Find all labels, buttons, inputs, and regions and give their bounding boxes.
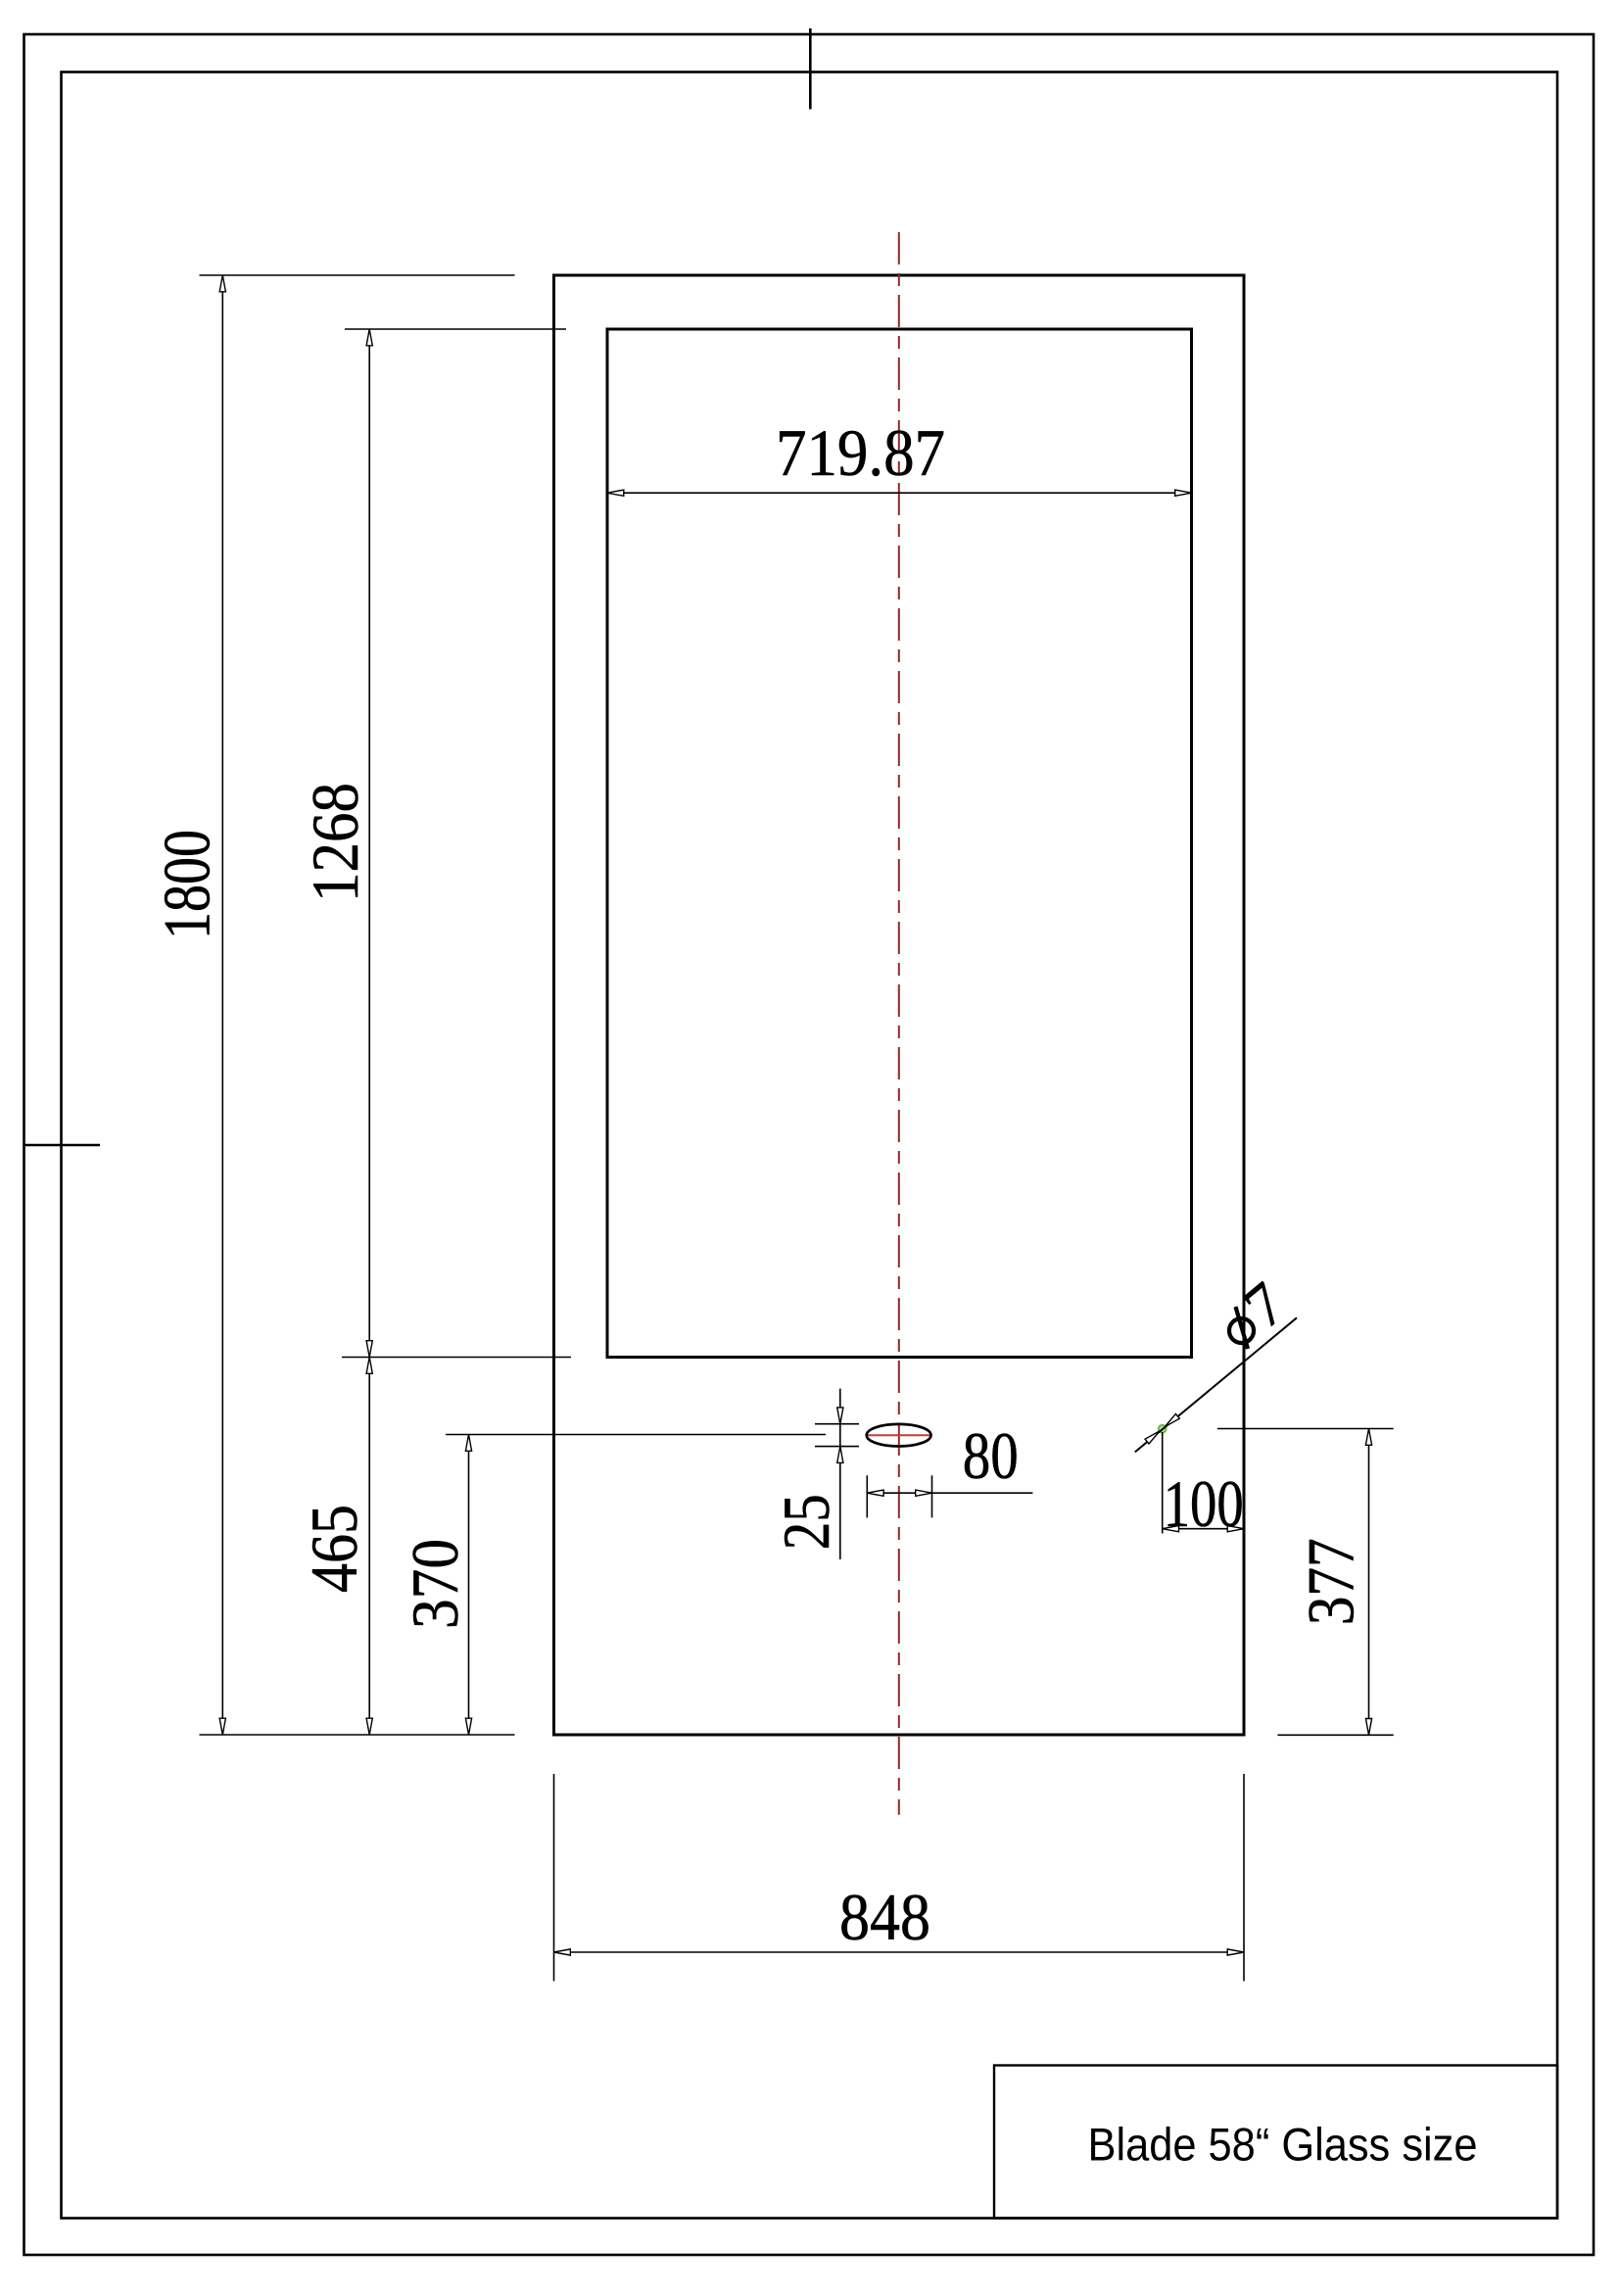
svg-text:1800: 1800: [150, 830, 224, 939]
svg-text:465: 465: [297, 1505, 371, 1593]
svg-text:377: 377: [1294, 1538, 1368, 1625]
svg-text:848: 848: [839, 1880, 930, 1954]
svg-text:719.87: 719.87: [776, 415, 945, 490]
svg-text:370: 370: [398, 1539, 472, 1629]
svg-text:25: 25: [769, 1494, 843, 1550]
svg-text:80: 80: [963, 1418, 1019, 1493]
svg-text:100: 100: [1164, 1466, 1244, 1541]
svg-text:1268: 1268: [298, 783, 372, 902]
svg-text:Blade 58“ Glass size: Blade 58“ Glass size: [1088, 2119, 1478, 2171]
